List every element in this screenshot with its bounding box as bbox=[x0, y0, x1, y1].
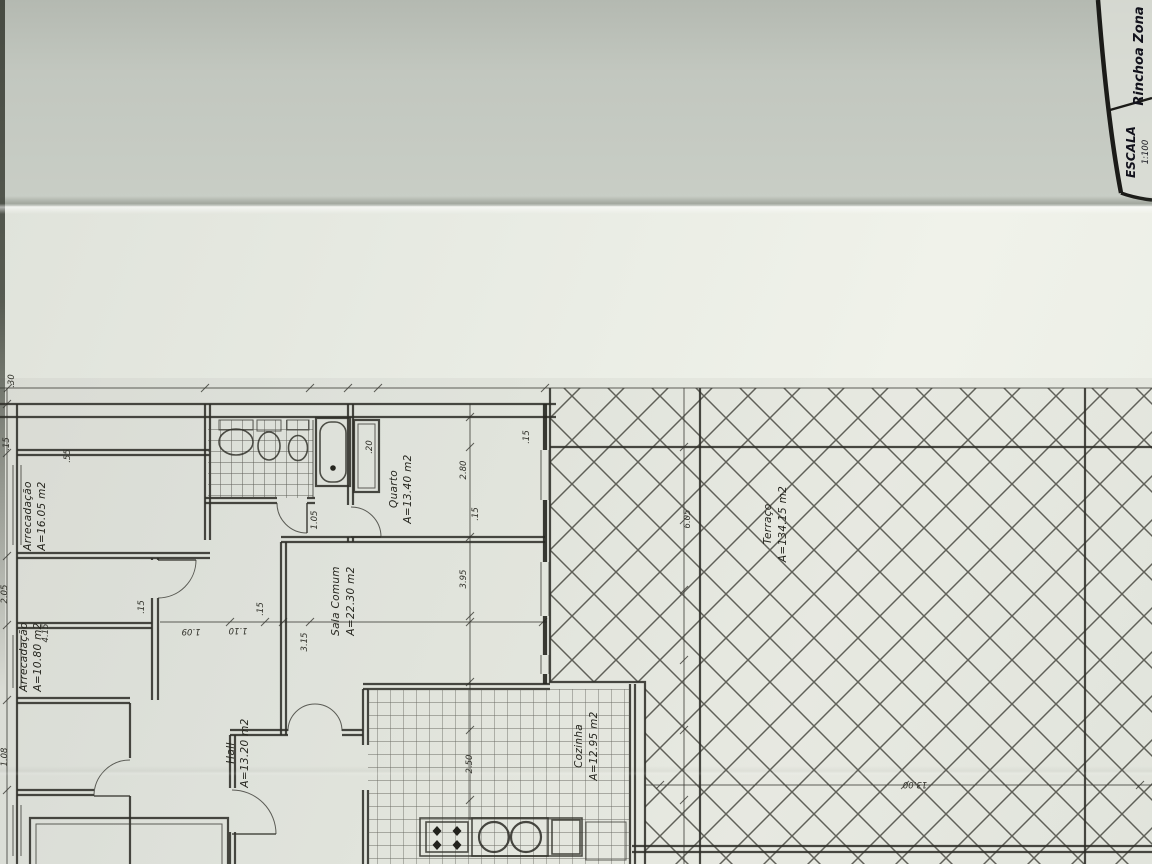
dimension-label: 1.05 bbox=[310, 511, 320, 530]
paper-fold-crease-lower bbox=[0, 766, 1152, 776]
room-label-area: A=13.40 m2 bbox=[402, 454, 414, 524]
floor-plan-drawing: Arrecadação A=16.05 m2 Arrecadação A=10.… bbox=[0, 0, 1152, 864]
room-label-name: Hall bbox=[225, 742, 237, 763]
room-label-name: Sala Comum bbox=[330, 566, 342, 636]
bathroom-tiles bbox=[208, 420, 313, 498]
titleblock-scale-label: ESCALA bbox=[1124, 126, 1138, 178]
dimension-label: .15 bbox=[137, 600, 147, 614]
room-label-name: Arrecadação bbox=[18, 622, 30, 693]
bathtub bbox=[316, 418, 350, 486]
dimension-label: 2.80 bbox=[459, 461, 469, 480]
dimension-label: .55 bbox=[63, 449, 73, 463]
dimension-label: .30 bbox=[7, 374, 17, 388]
room-label-name: Quarto bbox=[388, 470, 400, 508]
dimension-label: 1.08 bbox=[0, 747, 10, 767]
room-label-name: Arrecadação bbox=[22, 481, 34, 552]
dimension-label: .15 bbox=[2, 437, 12, 451]
dimension-label: 3.15 bbox=[300, 633, 310, 652]
dimension-label: 6.05 bbox=[683, 510, 693, 529]
double-door bbox=[288, 704, 342, 731]
dimension-label: .20 bbox=[365, 440, 375, 454]
dimension-label: 1.10 bbox=[229, 625, 248, 635]
dimension-label: .15 bbox=[471, 507, 481, 521]
bathroom bbox=[208, 418, 379, 498]
scanned-floorplan-photo: Arrecadação A=16.05 m2 Arrecadação A=10.… bbox=[0, 0, 1152, 864]
dimension-label: .15 bbox=[522, 430, 532, 444]
dimension-label: 2.05 bbox=[0, 585, 10, 604]
quarto-sala-wall bbox=[281, 537, 545, 542]
paper-fold-crease bbox=[0, 196, 1152, 214]
dimension-label: 4.15 bbox=[41, 624, 51, 643]
titleblock-location-label: Rinchoa Zona bbox=[1132, 6, 1147, 105]
dimension-label: .15 bbox=[256, 602, 266, 616]
room-label-name: Terraço bbox=[762, 504, 774, 545]
room-label-area: A=22.30 m2 bbox=[345, 566, 357, 636]
room-label-area: A=134.15 m2 bbox=[777, 486, 789, 563]
dimension-label: 1.09 bbox=[182, 626, 201, 636]
terrace-area bbox=[550, 388, 1152, 864]
dimension-label: 3.95 bbox=[459, 570, 469, 589]
shaft bbox=[354, 420, 379, 492]
title-block: Rinchoa Zona ESCALA 1:100 bbox=[1098, 0, 1152, 200]
room-label-name: Cozinha bbox=[573, 724, 585, 768]
dimension-label: 13.00 bbox=[903, 779, 927, 789]
room-label-area: A=13.20 m2 bbox=[239, 718, 251, 788]
terrace-crosshatch bbox=[550, 388, 1152, 864]
titleblock-scale-value: 1:100 bbox=[1141, 140, 1151, 165]
room-label-area: A=16.05 m2 bbox=[36, 481, 48, 551]
